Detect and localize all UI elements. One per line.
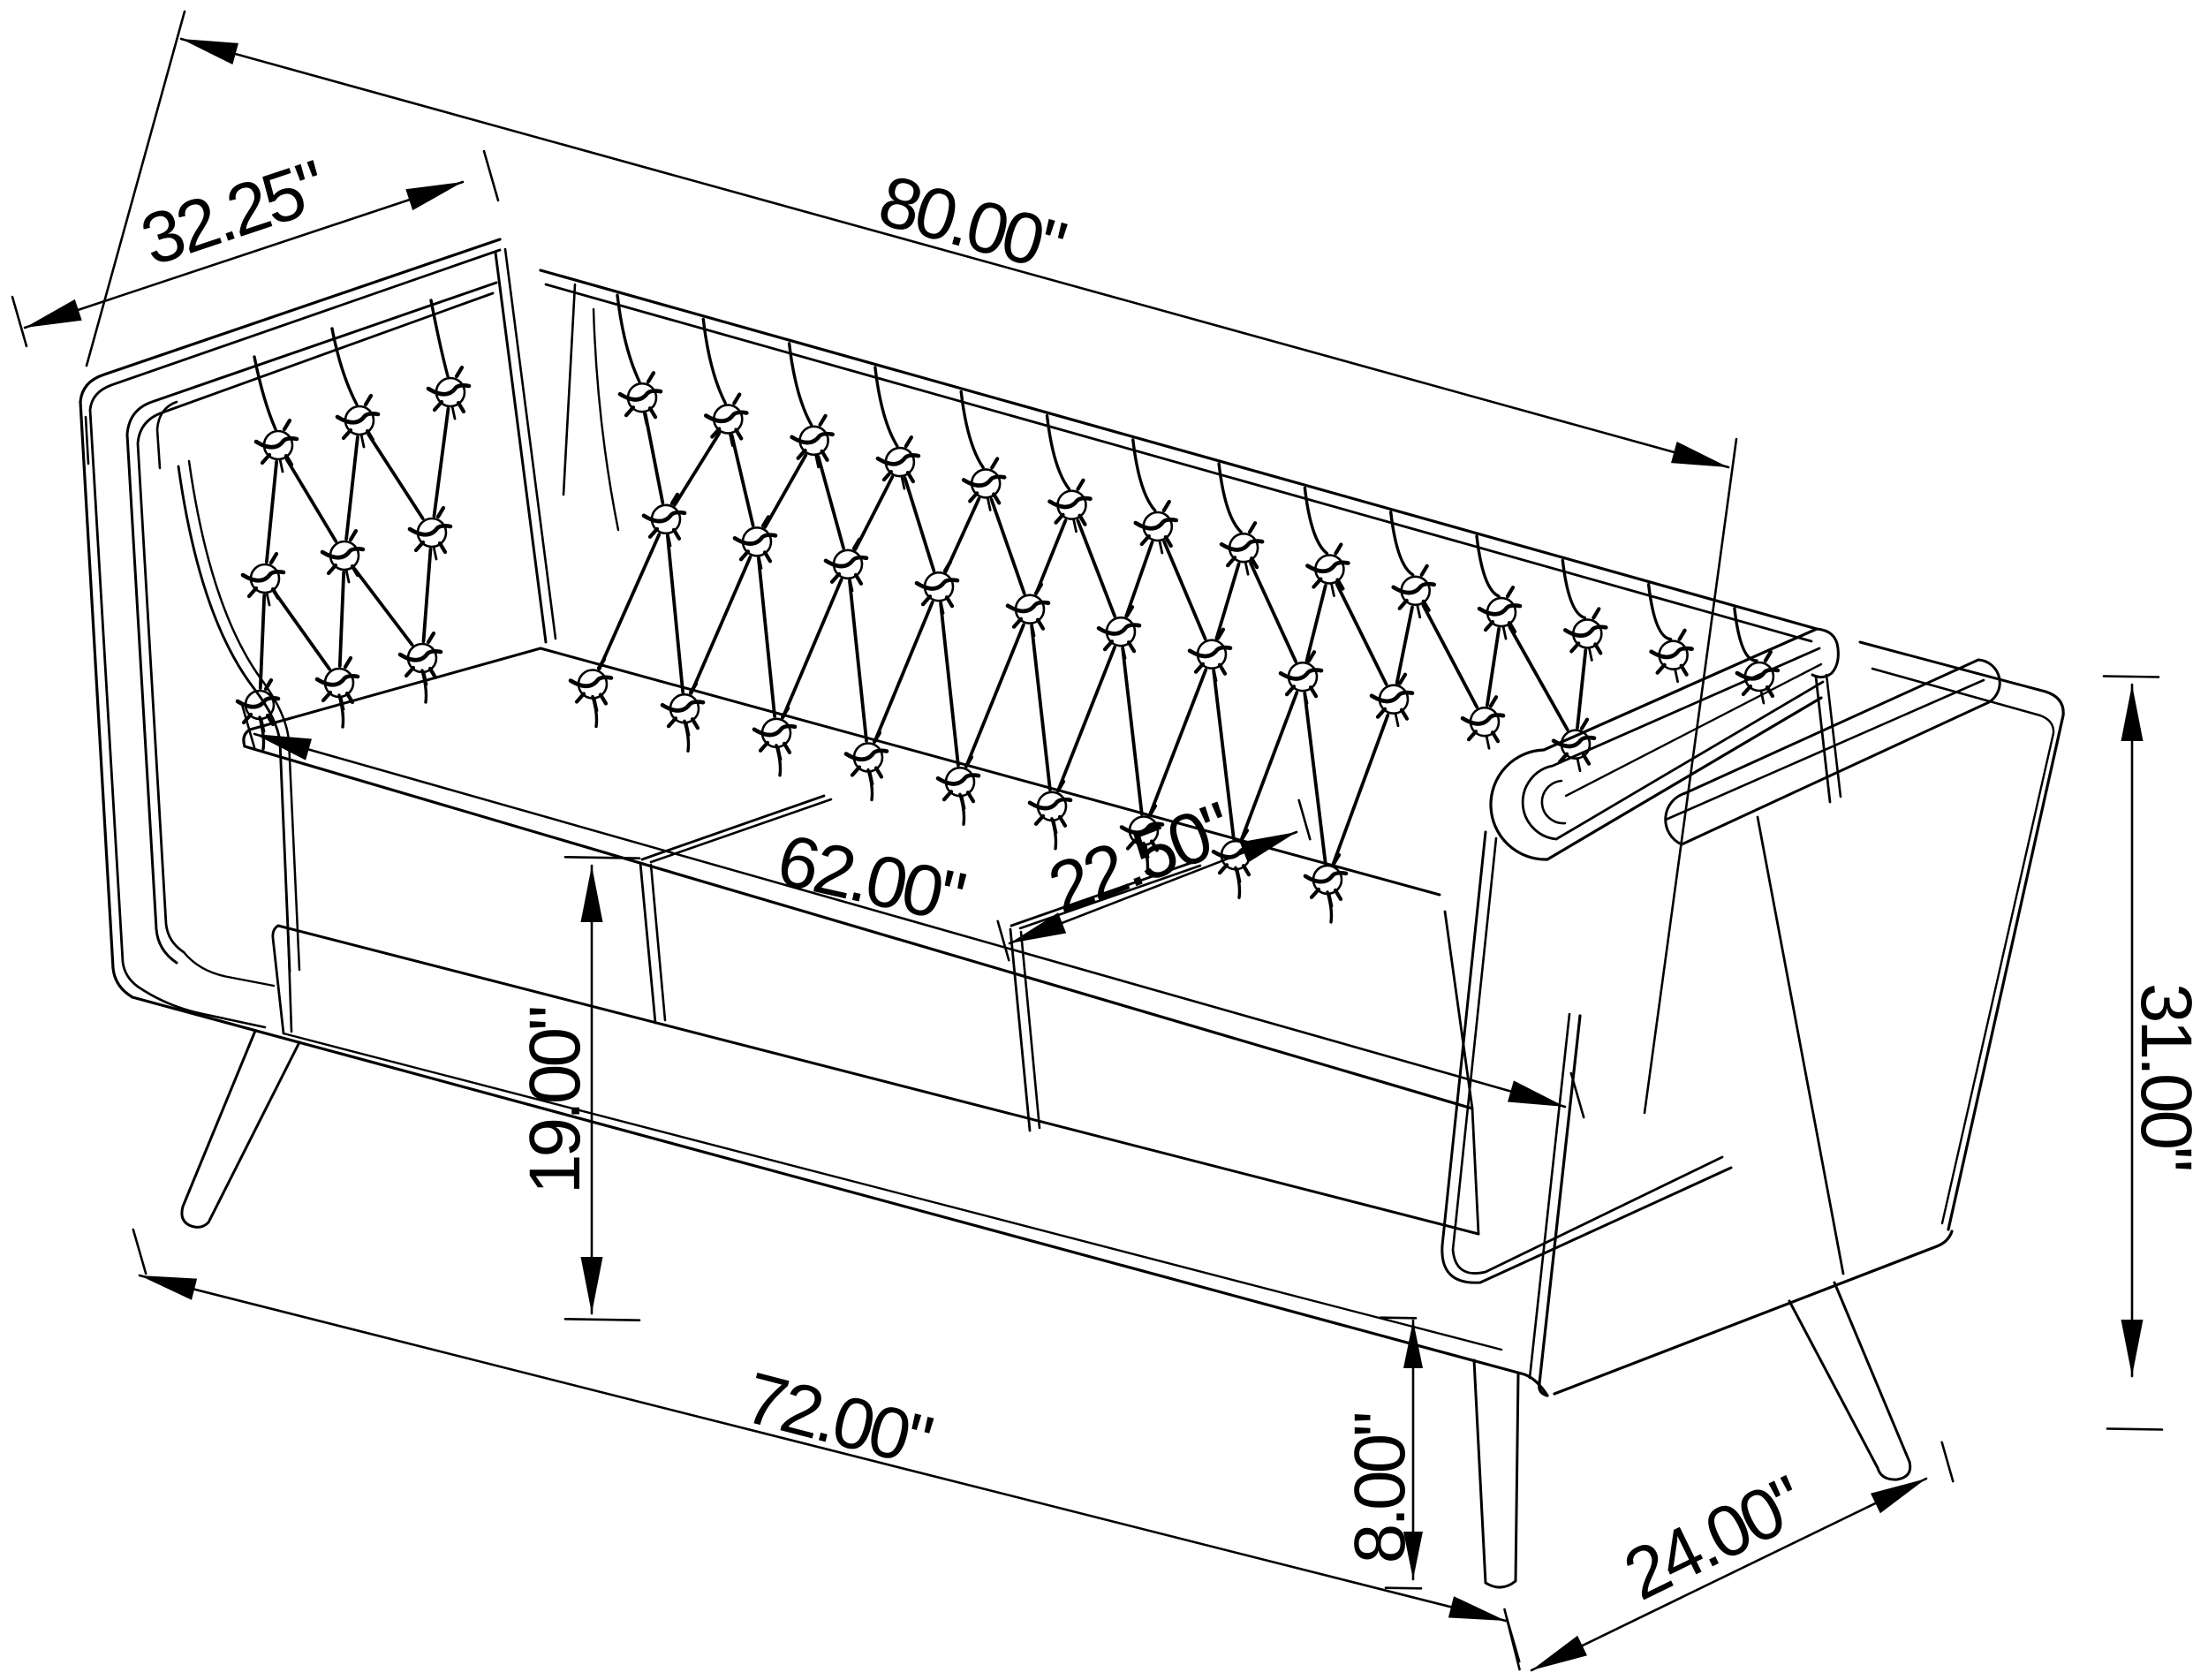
svg-text:31.00": 31.00" xyxy=(2126,983,2206,1169)
svg-text:19.00": 19.00" xyxy=(515,1008,595,1194)
svg-text:8.00": 8.00" xyxy=(1340,1414,1420,1564)
